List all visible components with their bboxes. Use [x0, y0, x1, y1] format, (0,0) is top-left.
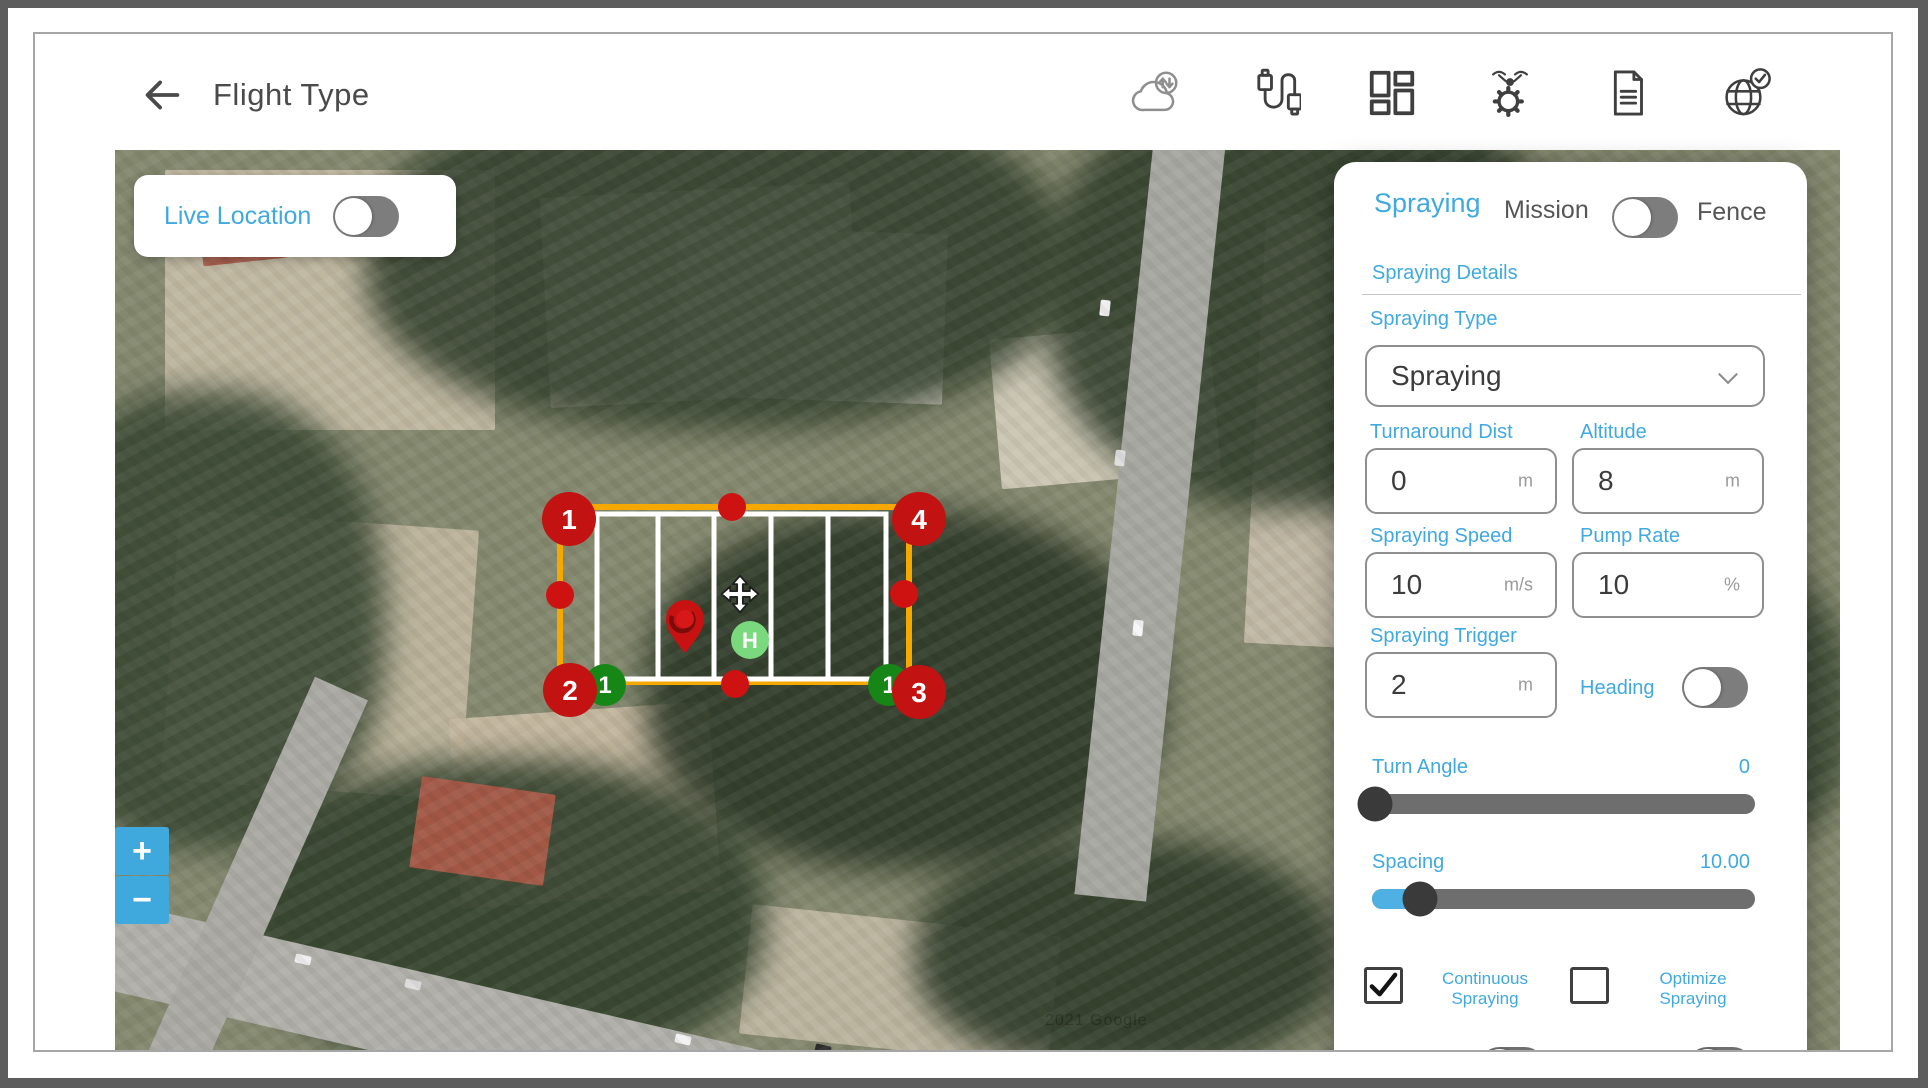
spacing-slider[interactable]	[1372, 889, 1755, 909]
svg-text:4: 4	[911, 504, 927, 535]
live-location-label: Live Location	[164, 202, 311, 231]
move-cursor-icon	[722, 576, 759, 613]
toggle-knob	[1481, 1049, 1518, 1052]
fence-mode-label: Fence	[1697, 198, 1766, 227]
spraying-trigger-value: 2	[1391, 669, 1407, 701]
svg-text:1: 1	[561, 504, 577, 535]
cloud-sync-icon[interactable]	[1129, 66, 1183, 120]
spraying-trigger-field[interactable]: 2 m	[1365, 652, 1557, 718]
turnaround-dist-label: Turnaround Dist	[1370, 421, 1513, 444]
svg-text:1: 1	[598, 672, 611, 699]
section-title: Spraying Details	[1372, 262, 1518, 285]
pump-rate-unit: %	[1724, 575, 1740, 596]
chevron-down-icon	[1718, 364, 1738, 384]
svg-text:H: H	[742, 628, 758, 653]
turnaround-dist-unit: m	[1518, 471, 1533, 492]
spraying-settings-panel: Spraying Mission Fence Spraying Details …	[1334, 162, 1807, 1052]
mission-mode-label: Mission	[1504, 196, 1589, 225]
check-icon	[1367, 970, 1400, 1001]
zoom-out-button[interactable]: −	[115, 876, 169, 924]
spraying-type-select[interactable]: Spraying	[1365, 345, 1765, 407]
panel-title: Spraying	[1374, 188, 1481, 219]
heading-label: Heading	[1580, 677, 1655, 700]
section-divider	[1362, 294, 1801, 295]
drone-location-pin	[666, 600, 704, 653]
usb-connection-icon[interactable]	[1247, 66, 1301, 120]
spraying-type-value: Spraying	[1391, 360, 1502, 392]
heading-toggle[interactable]	[1682, 667, 1748, 708]
back-arrow-icon[interactable]	[139, 72, 185, 118]
map-zoom-controls: + −	[115, 827, 169, 924]
toggle-knob	[1689, 1049, 1726, 1052]
optimize-spraying-label: Optimize Spraying	[1630, 969, 1756, 1010]
corner-marker-2[interactable]: 2	[543, 663, 597, 717]
toggle-knob	[1684, 669, 1721, 706]
slider-knob[interactable]	[1358, 787, 1393, 822]
altitude-field[interactable]: 8 m	[1572, 448, 1764, 514]
drone-settings-icon[interactable]	[1483, 66, 1537, 120]
turnaround-dist-field[interactable]: 0 m	[1365, 448, 1557, 514]
partial-toggle-right[interactable]	[1687, 1047, 1753, 1052]
continuous-spraying-checkbox[interactable]	[1364, 967, 1403, 1004]
partial-toggle-left[interactable]	[1479, 1047, 1545, 1052]
altitude-value: 8	[1598, 465, 1614, 497]
corner-marker-4[interactable]: 4	[892, 492, 946, 546]
spacing-label: Spacing	[1372, 851, 1444, 874]
dashboard-layout-icon[interactable]	[1365, 66, 1419, 120]
turn-angle-value: 0	[1739, 756, 1750, 779]
spraying-trigger-unit: m	[1518, 675, 1533, 696]
live-location-card: Live Location	[134, 175, 456, 257]
spraying-trigger-label: Spraying Trigger	[1370, 625, 1517, 648]
toggle-knob	[335, 198, 372, 235]
app-window: Flight Type	[33, 32, 1893, 1052]
toggle-knob	[1614, 199, 1651, 236]
pump-rate-label: Pump Rate	[1580, 525, 1680, 548]
turnaround-dist-value: 0	[1391, 465, 1407, 497]
pump-rate-value: 10	[1598, 569, 1629, 601]
document-icon[interactable]	[1601, 66, 1655, 120]
corner-marker-1[interactable]: 1	[542, 492, 596, 546]
altitude-unit: m	[1725, 471, 1740, 492]
desktop-background: Flight Type	[8, 8, 1918, 1078]
zoom-in-button[interactable]: +	[115, 827, 169, 875]
continuous-spraying-label: Continuous Spraying	[1422, 969, 1548, 1010]
spraying-speed-value: 10	[1391, 569, 1422, 601]
globe-check-icon[interactable]	[1719, 66, 1773, 120]
mission-fence-toggle[interactable]	[1612, 197, 1678, 238]
svg-text:3: 3	[911, 677, 927, 708]
optimize-spraying-checkbox[interactable]	[1570, 967, 1609, 1004]
turn-angle-label: Turn Angle	[1372, 756, 1468, 779]
live-location-toggle[interactable]	[333, 196, 399, 237]
slider-knob[interactable]	[1403, 882, 1438, 917]
home-marker[interactable]: H	[731, 621, 769, 659]
spraying-type-label: Spraying Type	[1370, 308, 1498, 331]
spraying-speed-label: Spraying Speed	[1370, 525, 1512, 548]
spacing-value: 10.00	[1700, 851, 1750, 874]
svg-text:2: 2	[562, 675, 578, 706]
header-bar: Flight Type	[35, 42, 1891, 150]
spraying-speed-unit: m/s	[1504, 575, 1533, 596]
page-title: Flight Type	[213, 77, 370, 113]
spraying-speed-field[interactable]: 10 m/s	[1365, 552, 1557, 618]
altitude-label: Altitude	[1580, 421, 1647, 444]
turn-angle-slider[interactable]	[1372, 794, 1755, 814]
corner-marker-3[interactable]: 3	[892, 665, 946, 719]
pump-rate-field[interactable]: 10 %	[1572, 552, 1764, 618]
